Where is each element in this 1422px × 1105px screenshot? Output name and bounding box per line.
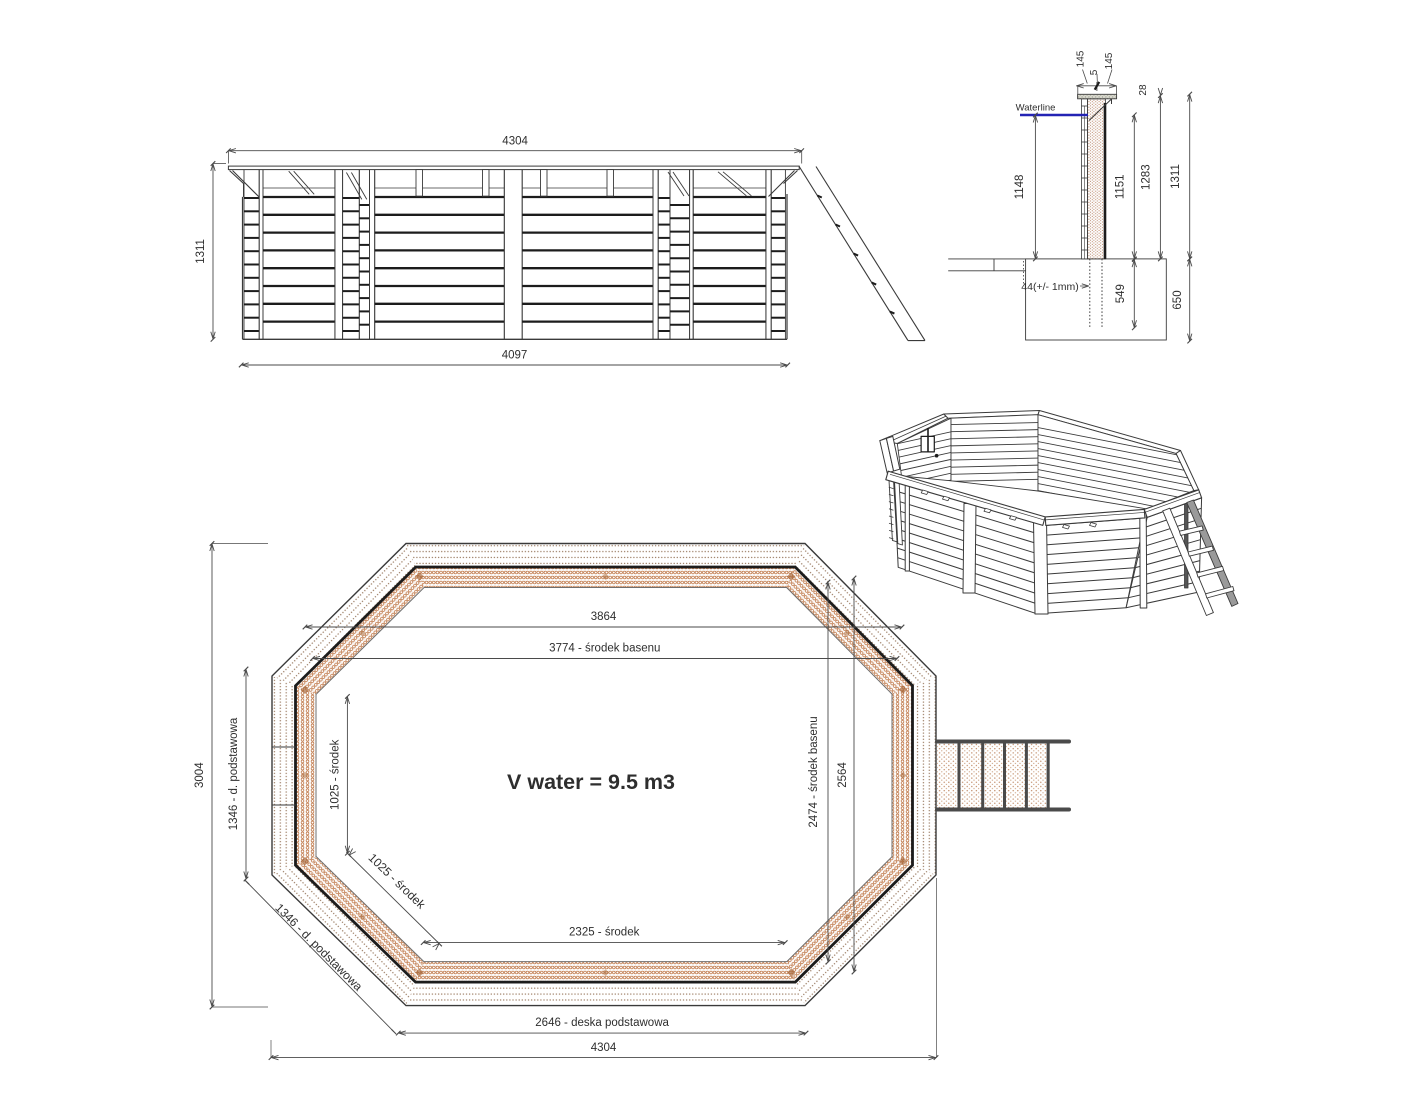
svg-text:1346 - d. podstawowa: 1346 - d. podstawowa	[228, 717, 240, 830]
svg-text:3864: 3864	[591, 611, 617, 623]
svg-text:1283: 1283	[1141, 164, 1153, 190]
svg-text:3774 - środek basenu: 3774 - środek basenu	[549, 643, 660, 655]
svg-text:1025 - środek: 1025 - środek	[329, 739, 341, 810]
svg-text:145: 145	[1104, 52, 1115, 69]
svg-text:5: 5	[1089, 69, 1100, 75]
svg-text:1148: 1148	[1014, 175, 1026, 200]
svg-text:2325 - środek: 2325 - środek	[569, 927, 640, 939]
svg-text:549: 549	[1115, 284, 1127, 303]
svg-text:650: 650	[1172, 290, 1184, 309]
svg-text:V water = 9.5 m3: V water = 9.5 m3	[507, 770, 675, 794]
svg-text:4304: 4304	[502, 136, 528, 148]
svg-text:2646 - deska podstawowa: 2646 - deska podstawowa	[535, 1017, 669, 1029]
svg-text:4304: 4304	[591, 1042, 617, 1054]
svg-text:1151: 1151	[1115, 174, 1127, 199]
svg-text:Waterline: Waterline	[1016, 103, 1056, 114]
svg-text:2564: 2564	[837, 762, 849, 788]
svg-text:145: 145	[1076, 50, 1087, 67]
svg-text:3004: 3004	[194, 762, 206, 788]
svg-text:1311: 1311	[1170, 164, 1182, 189]
svg-text:28: 28	[1138, 84, 1149, 96]
svg-text:4097: 4097	[502, 350, 528, 362]
svg-text:1311: 1311	[195, 239, 207, 264]
svg-text:44(+/- 1mm): 44(+/- 1mm)	[1021, 281, 1078, 293]
svg-text:2474 - środek basenu: 2474 - środek basenu	[808, 716, 820, 827]
